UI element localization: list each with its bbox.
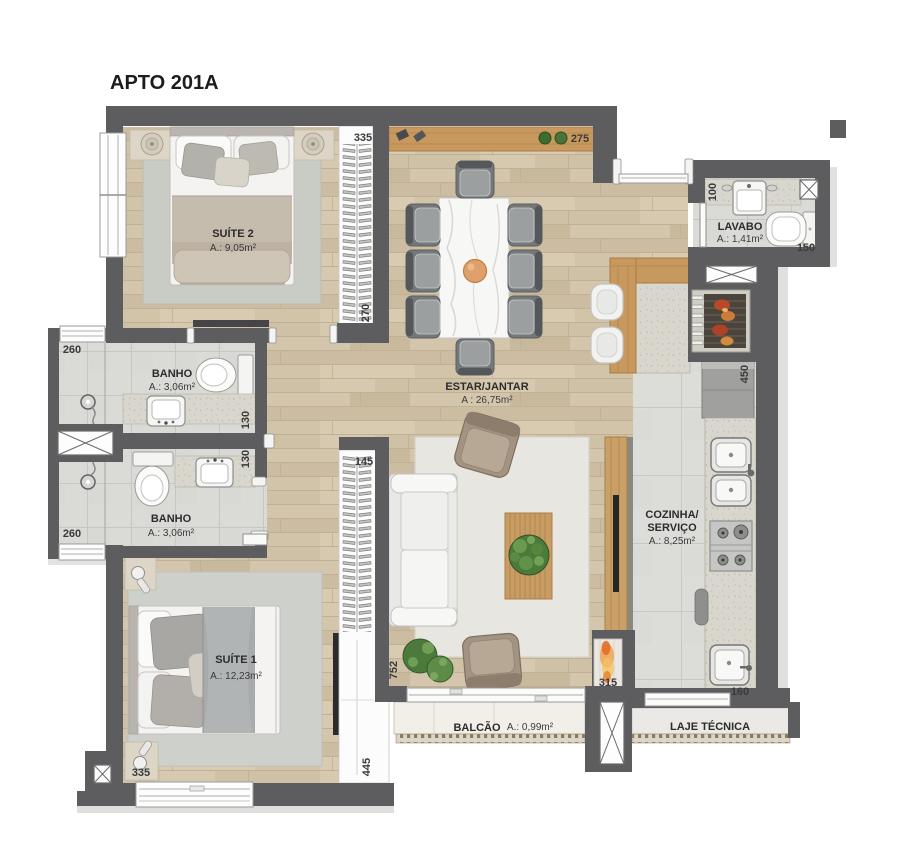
svg-text:A : 26,75m²: A : 26,75m² [461,395,513,406]
svg-text:BALCÃO: BALCÃO [453,721,500,734]
svg-text:160: 160 [731,686,749,698]
svg-text:260: 260 [63,528,81,540]
svg-text:A.: 12,23m²: A.: 12,23m² [210,671,262,682]
svg-text:LAJE TÉCNICA: LAJE TÉCNICA [670,720,750,733]
svg-text:SUÍTE 2: SUÍTE 2 [212,227,254,240]
svg-text:130: 130 [240,450,252,468]
svg-text:COZINHA/: COZINHA/ [645,509,698,521]
svg-text:450: 450 [739,365,751,383]
svg-text:BANHO: BANHO [151,513,192,525]
svg-text:APTO 201A: APTO 201A [110,72,219,94]
svg-text:A.: 3,06m²: A.: 3,06m² [148,528,195,539]
svg-text:A.: 3,06m²: A.: 3,06m² [149,382,196,393]
svg-text:100: 100 [707,183,719,201]
svg-text:A.: 8,25m²: A.: 8,25m² [649,536,696,547]
svg-text:A.: 9,05m²: A.: 9,05m² [210,243,257,254]
svg-text:A.: 1,41m²: A.: 1,41m² [717,234,764,245]
svg-text:LAVABO: LAVABO [718,221,763,233]
svg-text:335: 335 [132,767,150,779]
svg-text:315: 315 [599,677,617,689]
svg-text:BANHO: BANHO [152,368,193,380]
svg-text:335: 335 [354,132,372,144]
svg-text:260: 260 [63,344,81,356]
svg-text:130: 130 [240,411,252,429]
svg-text:150: 150 [797,242,815,254]
svg-text:A.: 0,99m²: A.: 0,99m² [507,722,554,733]
svg-text:ESTAR/JANTAR: ESTAR/JANTAR [445,381,528,393]
svg-text:445: 445 [361,758,373,776]
svg-text:752: 752 [388,661,400,679]
svg-text:SERVIÇO: SERVIÇO [647,522,697,534]
svg-text:145: 145 [355,456,373,468]
svg-text:275: 275 [571,133,589,145]
svg-text:SUÍTE 1: SUÍTE 1 [215,653,257,666]
svg-text:270: 270 [360,304,372,322]
